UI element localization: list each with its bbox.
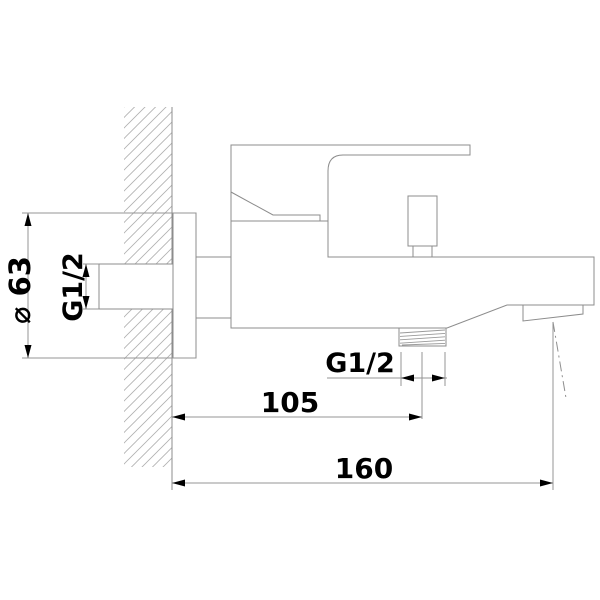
water-stream-centerline <box>553 322 566 398</box>
arrow-up-icon <box>25 213 32 226</box>
inlet-pipe <box>99 264 173 309</box>
arrow-down-icon <box>25 345 32 358</box>
threaded-outlet <box>399 328 446 346</box>
diverter-knob-base <box>413 246 432 257</box>
outlet-thread-label: G1/2 <box>325 348 395 379</box>
wall-to-outlet-label: 105 <box>261 386 319 419</box>
arrow-right-icon <box>432 375 445 382</box>
wall-to-spout-label: 160 <box>335 452 393 485</box>
dim-outlet-thread: G1/2 <box>325 348 447 419</box>
arrow-left-icon <box>401 375 414 382</box>
connector-nut <box>196 257 231 318</box>
diverter-knob <box>408 196 437 246</box>
dim-wall-to-outlet: 105 <box>172 386 422 421</box>
bath-mixer-technical-drawing: ⌀ 63 G1/2 G1/2 <box>0 0 600 600</box>
spout-tip <box>523 305 583 321</box>
arrow-right-icon <box>540 480 553 487</box>
arrow-right-icon <box>409 414 422 421</box>
arrow-left-icon <box>172 414 185 421</box>
arrow-left-icon <box>172 480 185 487</box>
flange-diameter-label: ⌀ 63 <box>3 256 37 324</box>
inlet-thread-label: G1/2 <box>58 252 89 322</box>
dim-inlet-thread: G1/2 <box>58 252 99 322</box>
escutcheon-flange <box>173 213 196 358</box>
technical-drawing-canvas: ⌀ 63 G1/2 G1/2 <box>0 0 600 600</box>
